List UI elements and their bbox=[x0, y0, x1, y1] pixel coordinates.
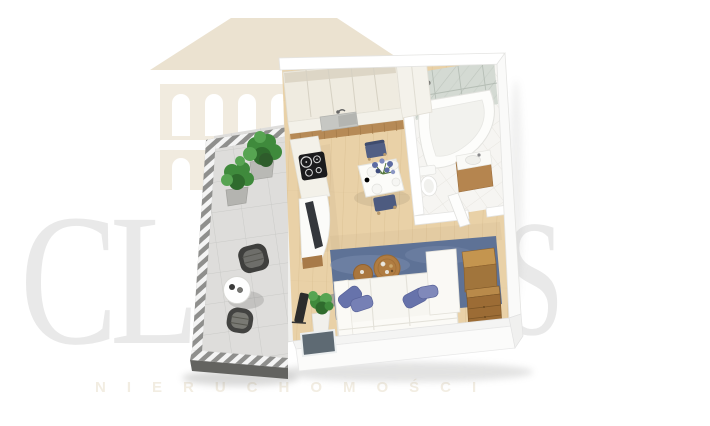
cup-icon bbox=[365, 178, 370, 183]
cup-icon bbox=[229, 284, 235, 290]
real-estate-floorplan-render: CL S NIERUCHOMOŚCI bbox=[0, 0, 710, 426]
plate-icon bbox=[367, 167, 377, 177]
induction-cooktop bbox=[298, 151, 328, 181]
plate-icon bbox=[372, 184, 382, 194]
cup-icon bbox=[237, 287, 242, 292]
balcony bbox=[190, 124, 288, 379]
plate-icon bbox=[392, 178, 400, 186]
bistro-table bbox=[224, 277, 251, 304]
apartment-floorplan bbox=[0, 0, 710, 426]
bottom-window bbox=[301, 330, 336, 356]
vanity-sink bbox=[456, 150, 493, 192]
faucet-icon bbox=[477, 153, 480, 156]
